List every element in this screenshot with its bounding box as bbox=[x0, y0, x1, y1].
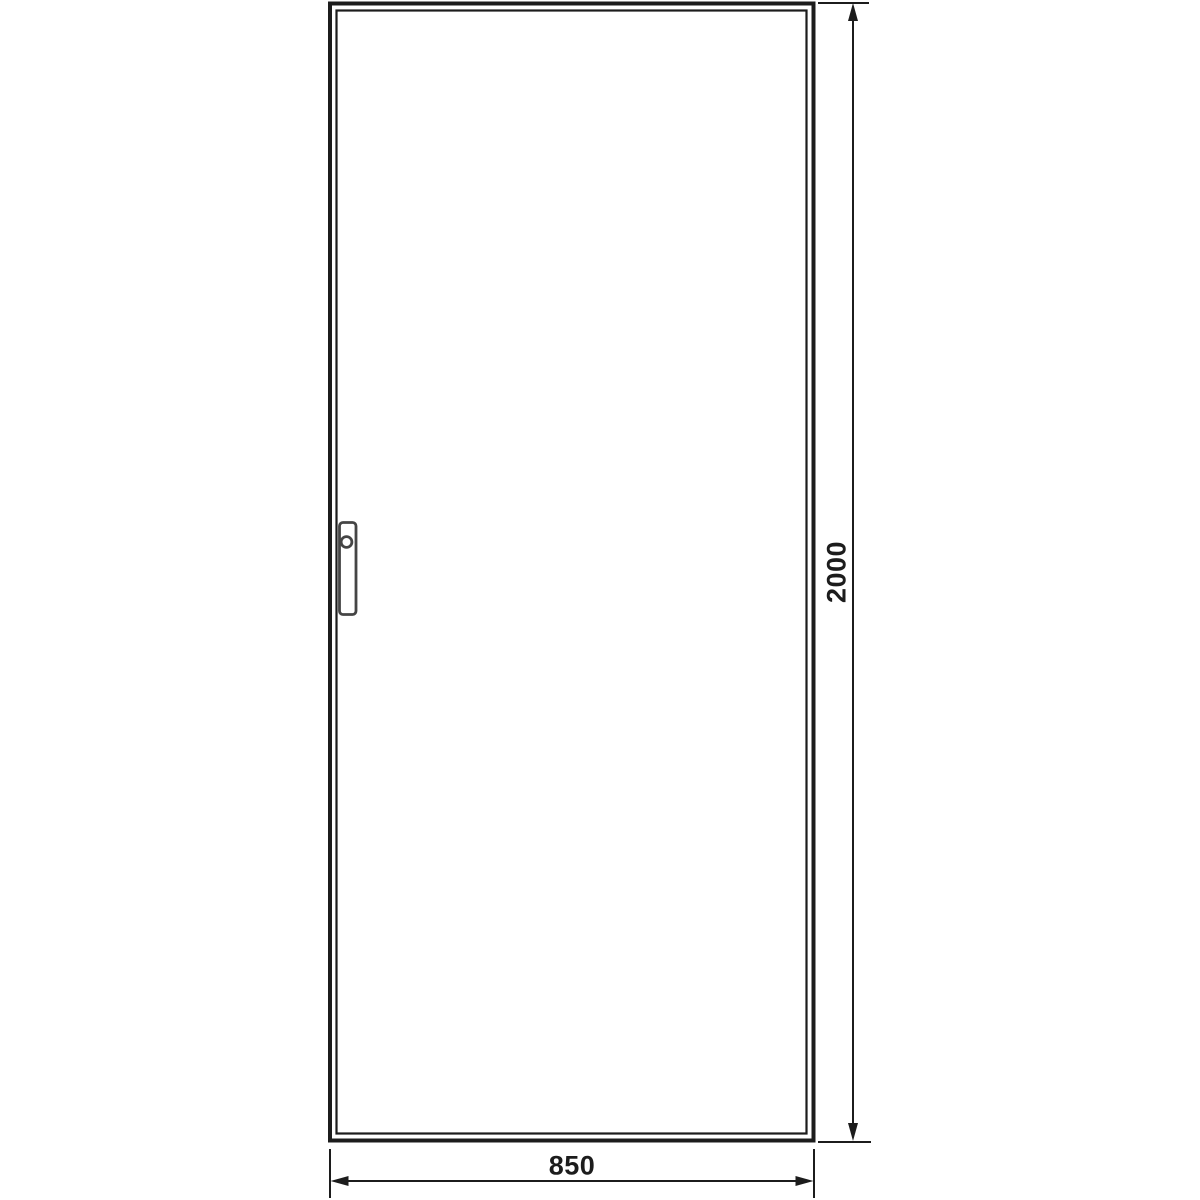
drawing-background bbox=[0, 0, 1200, 1200]
drawing-canvas: 2000 850 bbox=[0, 0, 1200, 1200]
width-dimension-label: 850 bbox=[549, 1151, 596, 1181]
technical-drawing: 2000 850 bbox=[0, 0, 1200, 1200]
height-dimension-label: 2000 bbox=[822, 541, 852, 603]
